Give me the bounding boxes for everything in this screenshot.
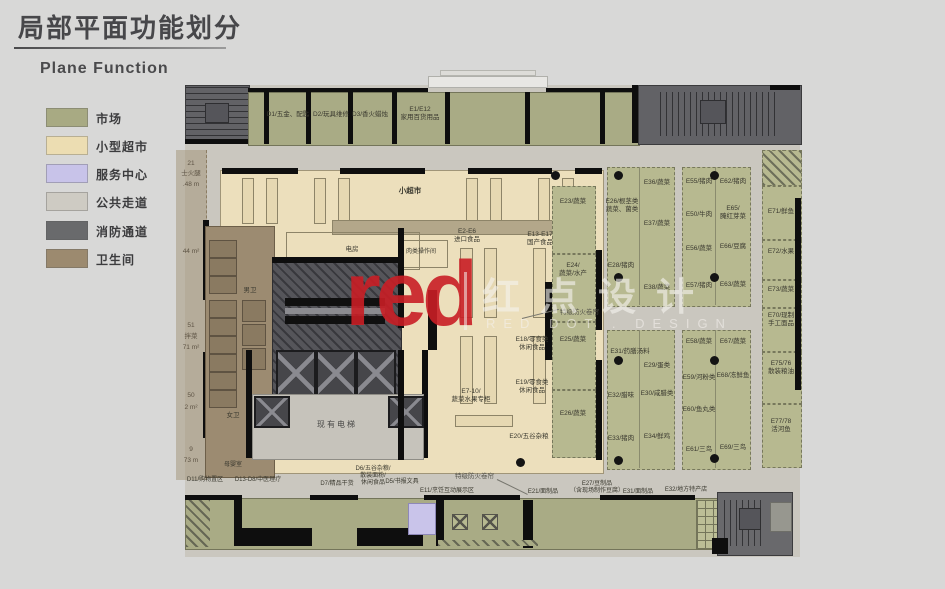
stall-label: E31/药膳汤料 bbox=[610, 348, 649, 356]
adjacent-label: 44 m² bbox=[183, 248, 200, 256]
shelf-rack bbox=[466, 178, 478, 224]
market-stall bbox=[552, 390, 596, 458]
room-label: D2/玩具维修 bbox=[313, 111, 349, 119]
toilet-stall bbox=[209, 258, 237, 276]
stall-label: E60/鱼丸类 bbox=[683, 406, 716, 414]
stall-label: E26/蔬菜 bbox=[560, 410, 586, 418]
adjacent-label: 71 m² bbox=[183, 344, 200, 352]
aisle-label-snack: E19/零食类 休闲食品 bbox=[516, 379, 549, 395]
toilet-stall bbox=[209, 300, 237, 318]
wall bbox=[340, 168, 425, 174]
room-label-existing-elevator: 现有电梯 bbox=[317, 420, 357, 430]
watermark-cn-text: 红点设计 bbox=[482, 266, 714, 321]
stall-label: E34/鲜鸡 bbox=[644, 433, 670, 441]
stall-label: E37/蔬菜 bbox=[644, 220, 670, 228]
stall-label: E25/蔬菜 bbox=[560, 336, 586, 344]
fire-shutter-annotation: 特级防火卷帘 bbox=[455, 470, 494, 480]
adjacent-label: 9 bbox=[189, 446, 193, 454]
shelf-rack bbox=[338, 178, 350, 224]
adjacent-label: 50 bbox=[187, 392, 194, 400]
service-center-room bbox=[408, 503, 436, 535]
stall-label: E32/腊味 bbox=[608, 392, 634, 400]
lobby-notch bbox=[770, 502, 792, 532]
wall bbox=[392, 92, 397, 144]
aisle-label-grain: E20/五谷杂粮 bbox=[509, 433, 548, 441]
stall-label: E63/蔬菜 bbox=[720, 281, 746, 289]
stall-label: E62/猪肉 bbox=[720, 178, 746, 186]
wall bbox=[600, 92, 605, 144]
elevator bbox=[276, 350, 316, 396]
adjacent-label: 73 m bbox=[184, 457, 198, 465]
shelf-rack bbox=[242, 178, 254, 224]
stall-label: E67/蔬菜 bbox=[720, 338, 746, 346]
adjacent-label: 2 m² bbox=[185, 404, 198, 412]
counter-hatch bbox=[438, 540, 538, 546]
toilet-stall bbox=[209, 354, 237, 372]
stall-label: E50/牛肉 bbox=[686, 211, 712, 219]
market-stall bbox=[552, 186, 596, 254]
wall bbox=[222, 168, 298, 174]
room-label: E31/面制品 bbox=[623, 489, 653, 496]
stall-label: E73/蔬菜 bbox=[768, 286, 794, 294]
wall bbox=[632, 85, 638, 143]
structural-column bbox=[710, 171, 719, 180]
toilet-stall bbox=[209, 372, 237, 390]
stall-label: E61/三鸟 bbox=[686, 446, 712, 454]
shelf-rack bbox=[490, 178, 502, 224]
adjacent-label: 士火腿 bbox=[181, 170, 201, 178]
room-label: D11/购物置区 bbox=[187, 477, 223, 484]
stall-label: E36/蔬菜 bbox=[644, 179, 670, 187]
wall bbox=[468, 168, 552, 174]
stall-label: E72/水果 bbox=[768, 248, 794, 256]
room-label-men-toilet: 男卫 bbox=[244, 287, 257, 295]
stall-label: E30/咸腊类 bbox=[641, 390, 674, 398]
adjacent-label: 21 bbox=[187, 160, 194, 168]
elevator bbox=[316, 350, 356, 396]
storage-room bbox=[186, 499, 210, 547]
shelf-rack bbox=[538, 178, 550, 224]
toilet-stall bbox=[209, 336, 237, 354]
structural-column bbox=[614, 356, 623, 365]
stall-label: E65/ 腌红芽菜 bbox=[720, 205, 746, 221]
room-label-women-toilet: 女卫 bbox=[227, 412, 240, 420]
room-label: D7/精品干货 bbox=[320, 481, 353, 488]
wall bbox=[795, 198, 801, 390]
stall-label: E66/豆腐 bbox=[720, 243, 746, 251]
elevator bbox=[388, 396, 424, 428]
shelf-rack bbox=[455, 415, 513, 427]
stall-label: E59/河粉类 bbox=[683, 374, 716, 382]
watermark-logo: red bbox=[345, 248, 473, 340]
room-label: D1/五金、配匙 bbox=[267, 111, 310, 119]
room-label: E1/E12 家用百货用品 bbox=[401, 106, 440, 122]
toilet-fixture bbox=[242, 300, 266, 322]
room-label: E32/地方特产店 bbox=[665, 487, 707, 494]
aisle-label-domestic: E13-E17 国产食品 bbox=[527, 231, 553, 247]
room-label: D13-D8/中医理疗 bbox=[235, 477, 281, 484]
stall-label: E70/现制 手工面品 bbox=[768, 312, 794, 328]
adjacent-label: 51 bbox=[187, 322, 194, 330]
toilet-stall bbox=[209, 240, 237, 258]
room-label-supermarket: 小超市 bbox=[399, 186, 422, 195]
watermark-divider bbox=[464, 272, 467, 330]
stall-label: E68/冻鲜鱼 bbox=[717, 372, 750, 380]
structural-column bbox=[551, 171, 560, 180]
aisle-label-imported: E2-E6 进口食品 bbox=[454, 228, 480, 244]
aisle-label-snack: E18/零食类 休闲食品 bbox=[516, 336, 549, 352]
structural-column bbox=[710, 356, 719, 365]
toilet-fixture bbox=[242, 324, 266, 346]
stall-divider bbox=[715, 330, 716, 468]
stall-label: E77/78 活河鱼 bbox=[771, 418, 792, 434]
room-label: E11/烹饪互动展示区 bbox=[420, 488, 474, 495]
stall-label: E75/76 散装粮油 bbox=[768, 360, 794, 376]
wall bbox=[185, 139, 255, 144]
toilet-stall bbox=[209, 318, 237, 336]
stall-divider bbox=[715, 167, 716, 305]
wall bbox=[525, 92, 530, 144]
wall bbox=[398, 350, 404, 460]
stair-core bbox=[739, 508, 761, 530]
wall bbox=[248, 88, 428, 92]
market-stall bbox=[552, 322, 596, 390]
wall bbox=[234, 500, 242, 546]
elevator bbox=[356, 350, 396, 396]
wall bbox=[546, 88, 638, 92]
structural-column bbox=[516, 458, 525, 467]
entrance-canopy-line bbox=[440, 70, 536, 76]
room-label-nursery: 母婴室 bbox=[224, 462, 242, 469]
stair-core bbox=[205, 103, 229, 123]
shelf-rack bbox=[266, 178, 278, 224]
market-stall bbox=[762, 404, 802, 468]
room-label: D5/书报文具 bbox=[385, 479, 418, 486]
toilet-stall bbox=[209, 390, 237, 408]
demo-table bbox=[452, 514, 468, 530]
wall bbox=[770, 85, 800, 90]
toilet-stall bbox=[209, 276, 237, 294]
structural-column bbox=[614, 456, 623, 465]
adjacent-label: 拌菜 bbox=[185, 333, 198, 341]
stair-core bbox=[700, 100, 726, 124]
structural-column bbox=[614, 171, 623, 180]
wall bbox=[575, 168, 602, 174]
entrance-canopy bbox=[428, 76, 548, 88]
structural-column bbox=[710, 454, 719, 463]
watermark-en-text: RED DOT . DESIGN bbox=[486, 316, 733, 331]
stall-label: E33/猪肉 bbox=[608, 435, 634, 443]
wall bbox=[310, 495, 358, 500]
stall-label: E26/根茎类 蔬菜、菌类 bbox=[606, 198, 639, 214]
wall bbox=[596, 360, 602, 460]
aisle-label-produce: E7-10/ 蔬菜水果专柜 bbox=[452, 388, 491, 404]
wall bbox=[712, 538, 728, 554]
wall bbox=[445, 92, 450, 144]
stall-label: E56/蔬菜 bbox=[686, 245, 712, 253]
adjacent-label: .48 m bbox=[183, 181, 199, 189]
stall-label: E69/三鸟 bbox=[720, 444, 746, 452]
wall bbox=[242, 528, 312, 546]
market-stall bbox=[762, 150, 802, 186]
stall-label: E23/蔬菜 bbox=[560, 198, 586, 206]
stall-label: E55/猪肉 bbox=[686, 178, 712, 186]
stall-label: E58/蔬菜 bbox=[686, 338, 712, 346]
demo-table bbox=[482, 514, 498, 530]
room-label: E27/豆制品 （含现场制作豆腐） bbox=[570, 481, 624, 495]
elevator bbox=[254, 396, 290, 428]
stall-label: E71/鲜鱼 bbox=[768, 208, 794, 216]
room-label: D3/香火蜡烛 bbox=[352, 111, 388, 119]
room-label: E21/面制品 bbox=[528, 489, 558, 496]
stall-label: E29/蛋类 bbox=[644, 362, 670, 370]
shelf-rack bbox=[314, 178, 326, 224]
